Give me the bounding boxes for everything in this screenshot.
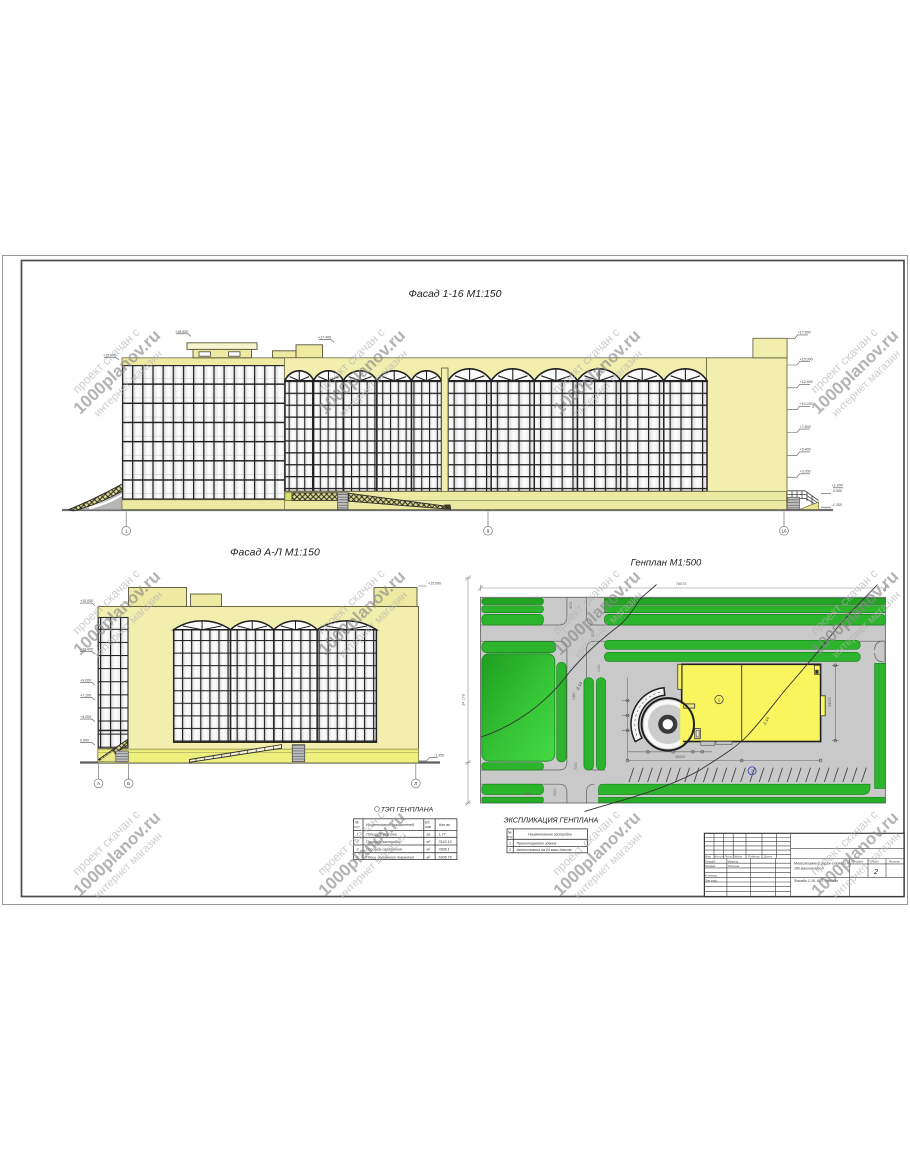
svg-text:+7.200: +7.200 bbox=[80, 693, 91, 697]
svg-text:Генплан М1:500: Генплан М1:500 bbox=[631, 558, 702, 569]
svg-text:2: 2 bbox=[873, 867, 879, 876]
svg-text:Зав.каф.: Зав.каф. bbox=[705, 878, 718, 882]
svg-text:7000: 7000 bbox=[574, 762, 578, 770]
svg-text:16: 16 bbox=[781, 529, 787, 534]
svg-text:ЭКСПЛИКАЦИЯ ГЕНПЛАНА: ЭКСПЛИКАЦИЯ ГЕНПЛАНА bbox=[504, 816, 599, 825]
svg-text:Разраб.: Разраб. bbox=[705, 860, 716, 864]
svg-text:7838,1: 7838,1 bbox=[439, 848, 450, 852]
svg-text:Кол-во: Кол-во bbox=[439, 823, 450, 827]
svg-text:28400: 28400 bbox=[675, 755, 685, 759]
svg-text:1,77: 1,77 bbox=[439, 832, 447, 836]
svg-text:Петров: Петров bbox=[728, 864, 740, 868]
svg-text:Н.контр.: Н.контр. bbox=[705, 874, 718, 878]
svg-text:ТЭП ГЕНПЛАНА: ТЭП ГЕНПЛАНА bbox=[381, 807, 434, 814]
svg-text:+4.200: +4.200 bbox=[80, 715, 91, 719]
svg-text:Подпись: Подпись bbox=[748, 855, 760, 859]
svg-text:Лист: Лист bbox=[724, 855, 733, 859]
svg-text:1: 1 bbox=[125, 529, 128, 534]
svg-text:Фасад 1-16 М1:150: Фасад 1-16 М1:150 bbox=[409, 288, 502, 300]
svg-text:9: 9 bbox=[487, 529, 490, 534]
svg-text:№док.: №док. bbox=[734, 855, 743, 859]
svg-text:+15.000: +15.000 bbox=[80, 599, 93, 603]
svg-text:Проектируемое здание: Проектируемое здание bbox=[517, 841, 557, 845]
svg-text:1440: 1440 bbox=[572, 692, 576, 700]
svg-text:+7.800: +7.800 bbox=[800, 425, 811, 429]
svg-text:+17.400: +17.400 bbox=[318, 336, 331, 340]
svg-text:0.000: 0.000 bbox=[80, 738, 89, 742]
svg-text:2: 2 bbox=[508, 848, 511, 852]
svg-text:Автостоянка на 24 маш./места: Автостоянка на 24 маш./места bbox=[516, 848, 572, 852]
svg-text:изм: изм bbox=[425, 825, 432, 829]
svg-text:2000: 2000 bbox=[553, 788, 557, 796]
svg-text:Иванов: Иванов bbox=[728, 860, 739, 864]
svg-text:+9.000: +9.000 bbox=[80, 678, 91, 682]
svg-text:га: га bbox=[427, 832, 431, 836]
svg-text:п.п: п.п bbox=[507, 835, 512, 839]
svg-text:№: № bbox=[508, 831, 512, 835]
svg-text:1000: 1000 bbox=[597, 664, 601, 672]
svg-text:+3.000: +3.000 bbox=[800, 470, 811, 474]
svg-text:24 170: 24 170 bbox=[462, 694, 466, 706]
svg-text:Л: Л bbox=[414, 781, 417, 786]
svg-text:Изм.: Изм. bbox=[705, 855, 712, 859]
svg-text:Б: Б bbox=[127, 781, 130, 786]
svg-text:Листов: Листов bbox=[888, 860, 900, 864]
svg-text:Ед.: Ед. bbox=[425, 821, 430, 825]
svg-text:Провер.: Провер. bbox=[705, 864, 716, 868]
svg-text:Дата: Дата bbox=[763, 855, 772, 859]
svg-text:+17.800: +17.800 bbox=[798, 331, 811, 335]
svg-text:24000: 24000 bbox=[828, 697, 832, 707]
svg-text:Кол.уч: Кол.уч bbox=[715, 855, 724, 859]
svg-text:+18.600: +18.600 bbox=[175, 330, 188, 334]
svg-text:6308,75: 6308,75 bbox=[439, 855, 452, 859]
svg-text:0.000: 0.000 bbox=[833, 489, 842, 493]
svg-text:76070: 76070 bbox=[676, 582, 687, 586]
svg-text:+1.200: +1.200 bbox=[832, 484, 843, 488]
svg-text:Наименование застройки: Наименование застройки bbox=[528, 833, 572, 837]
svg-text:+15.000: +15.000 bbox=[800, 357, 813, 361]
svg-text:+5.400: +5.400 bbox=[800, 448, 811, 452]
svg-text:3143,15: 3143,15 bbox=[439, 840, 452, 844]
svg-text:-1.350: -1.350 bbox=[832, 503, 842, 507]
svg-text:№: № bbox=[355, 821, 359, 825]
svg-text:-1.350: -1.350 bbox=[434, 754, 444, 758]
svg-text:1: 1 bbox=[509, 841, 511, 845]
svg-text:7000: 7000 bbox=[524, 792, 532, 796]
svg-text:+15.000: +15.000 bbox=[428, 582, 441, 586]
svg-text:Фасад А-Л М1:150: Фасад А-Л М1:150 bbox=[230, 547, 320, 559]
